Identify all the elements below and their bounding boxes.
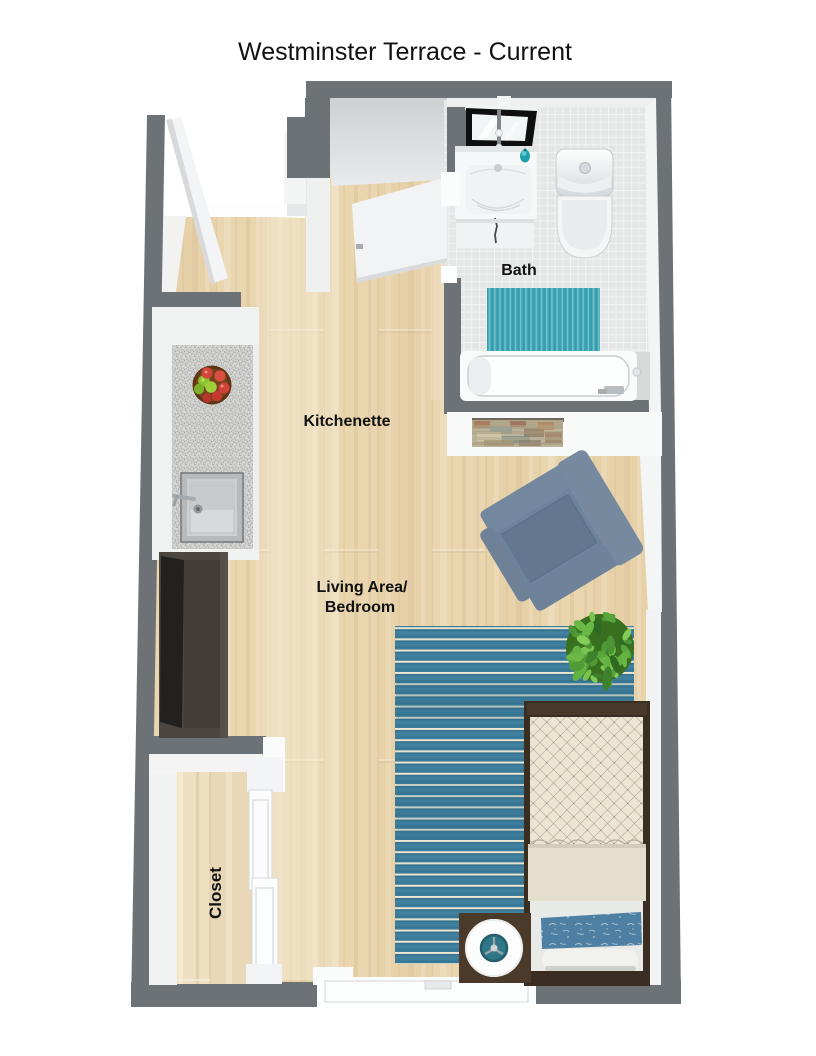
svg-text:Living Area/: Living Area/ [317,579,409,596]
svg-text:Closet: Closet [206,867,225,919]
svg-text:Westminster Terrace - Current: Westminster Terrace - Current [238,38,572,66]
svg-text:Bedroom: Bedroom [325,599,395,616]
svg-text:Bath: Bath [501,262,537,279]
svg-text:Kitchenette: Kitchenette [303,413,390,430]
